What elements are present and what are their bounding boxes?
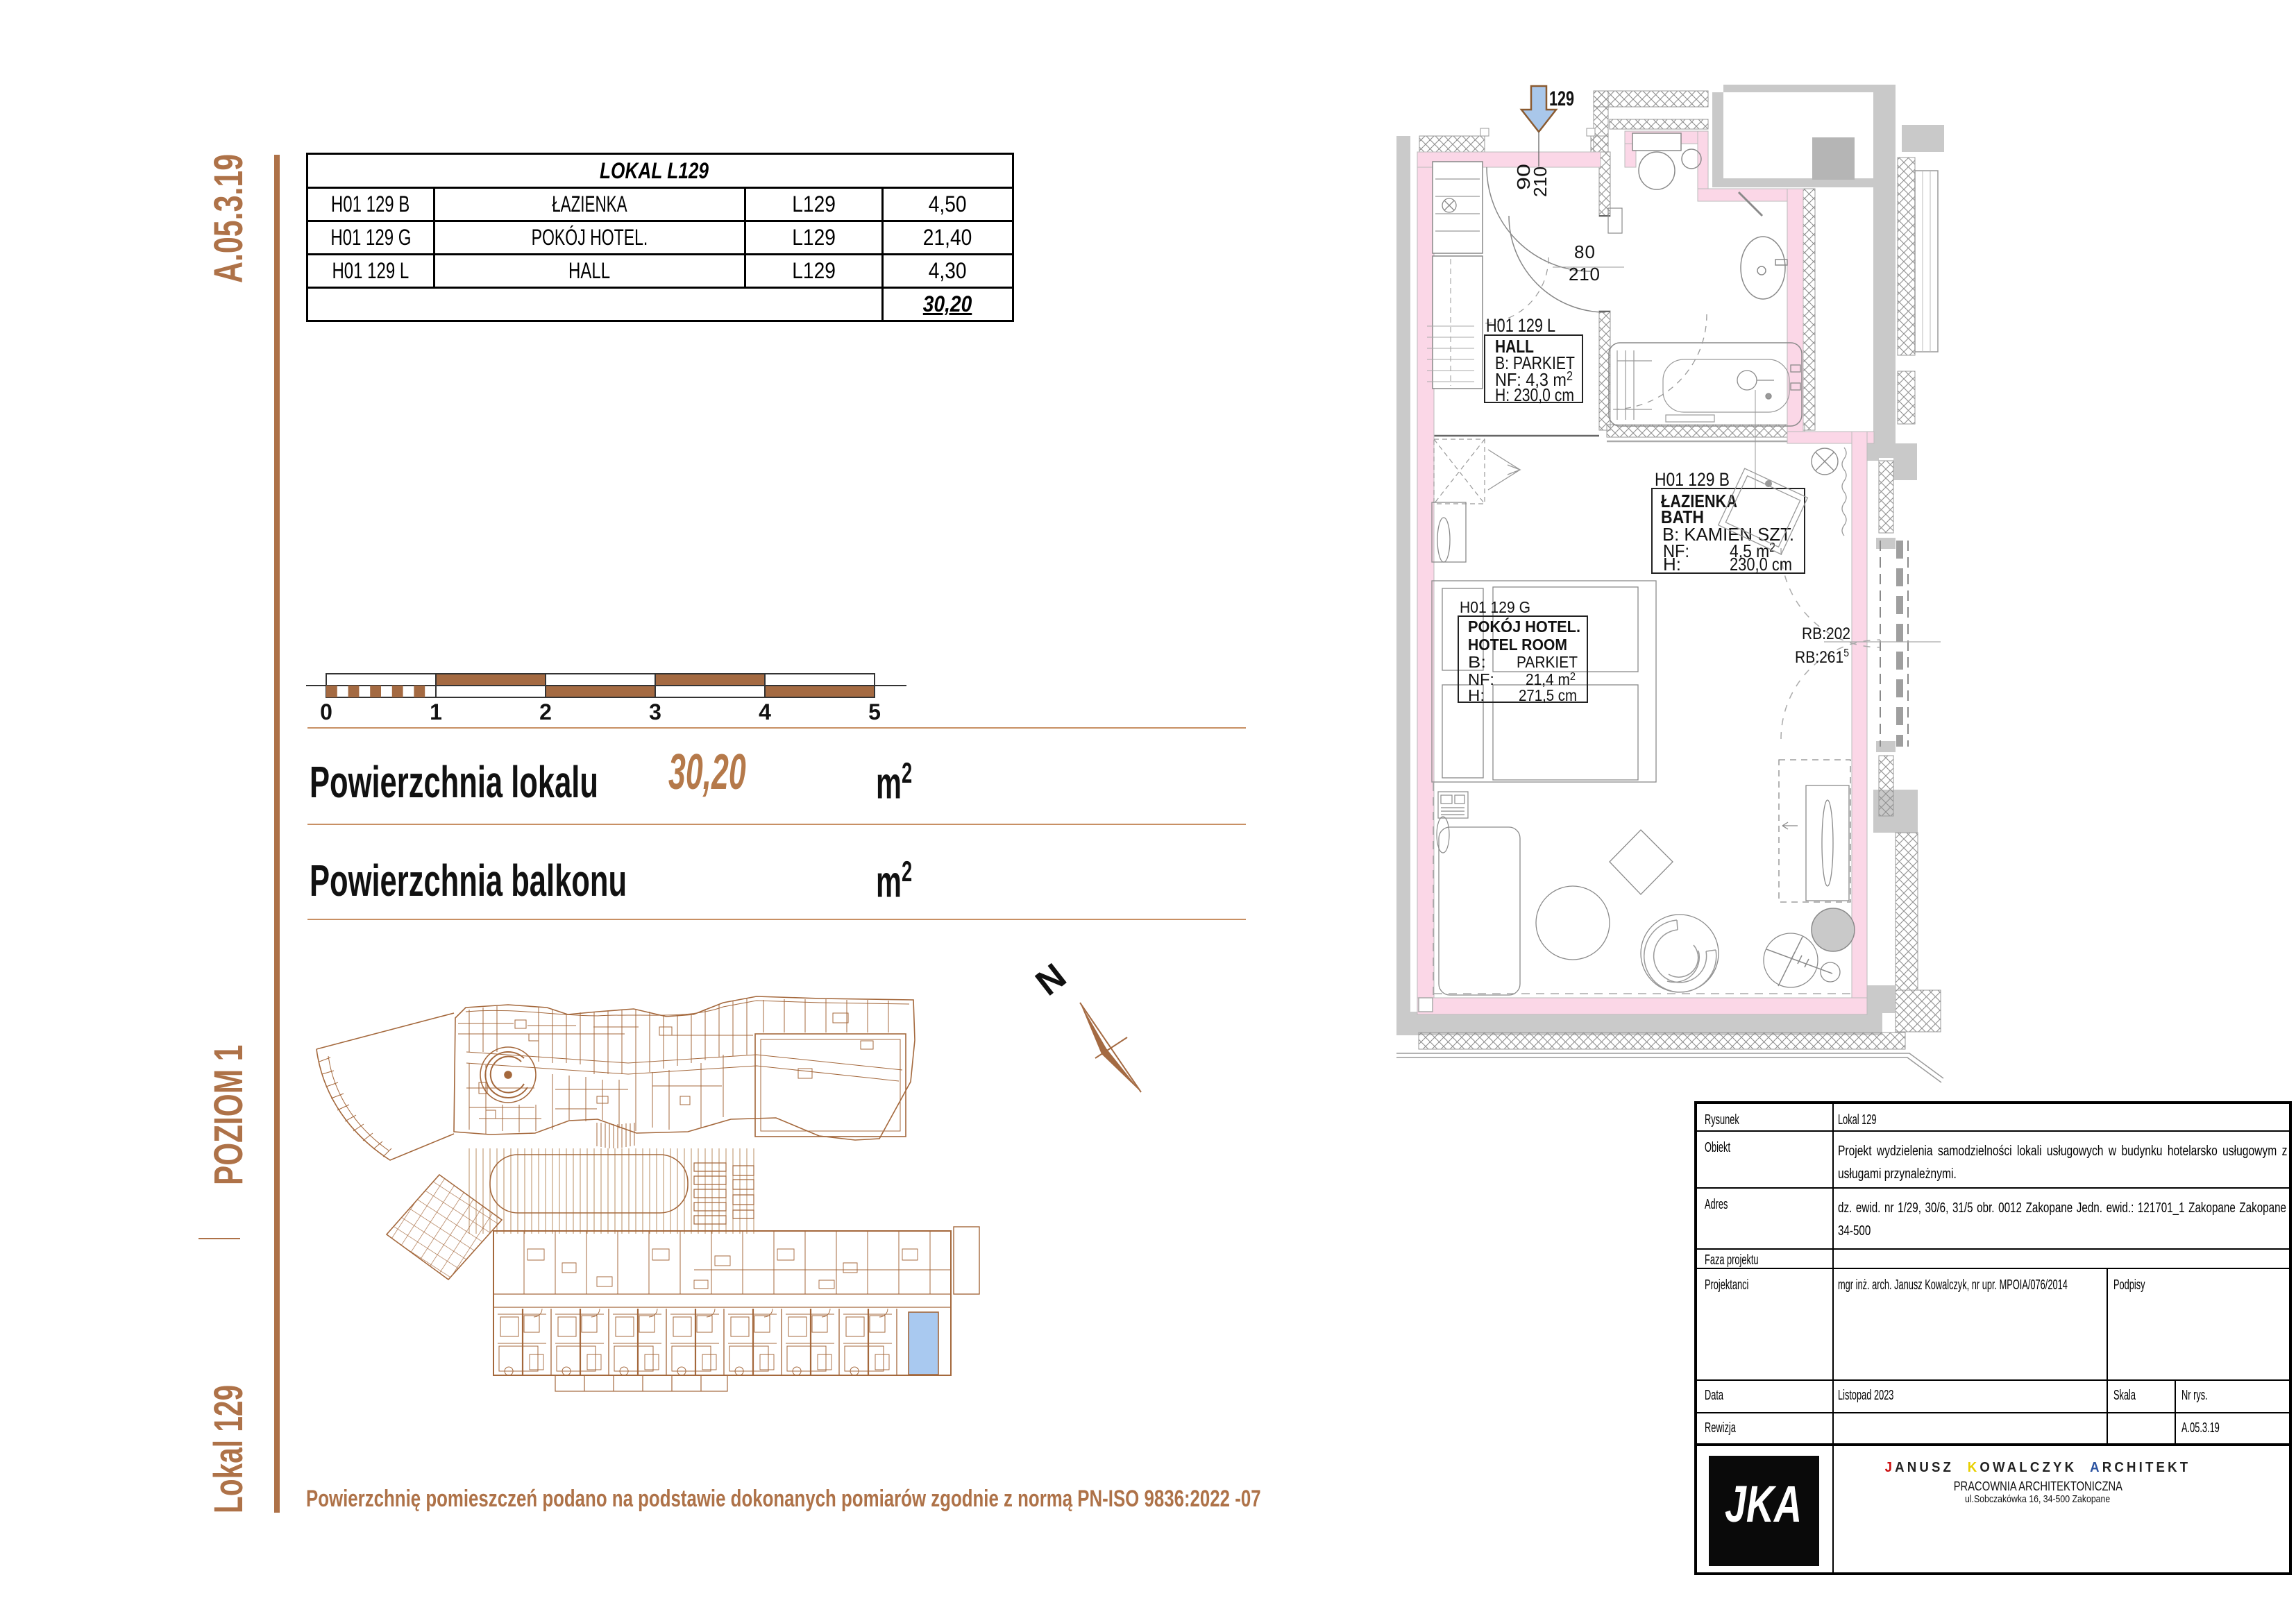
svg-text:PARKIET: PARKIET bbox=[1517, 653, 1578, 671]
svg-text:4: 4 bbox=[759, 699, 771, 724]
svg-text:H:: H: bbox=[1663, 554, 1681, 575]
svg-text:1: 1 bbox=[430, 699, 442, 724]
svg-text:2: 2 bbox=[539, 699, 552, 724]
svg-text:0: 0 bbox=[320, 699, 332, 724]
svg-text:B:: B: bbox=[1468, 653, 1486, 671]
svg-text:210: 210 bbox=[1530, 167, 1551, 197]
svg-text:H:: H: bbox=[1468, 686, 1485, 704]
svg-text:H: 230,0 cm: H: 230,0 cm bbox=[1495, 384, 1574, 405]
svg-text:HOTEL ROOM: HOTEL ROOM bbox=[1468, 636, 1567, 654]
svg-text:H01 129 B: H01 129 B bbox=[1655, 469, 1730, 490]
svg-text:80: 80 bbox=[1574, 241, 1595, 262]
svg-text:129: 129 bbox=[1549, 87, 1574, 110]
svg-text:H01 129 L: H01 129 L bbox=[1486, 315, 1555, 336]
svg-text:210: 210 bbox=[1569, 264, 1600, 284]
svg-text:H01 129 G: H01 129 G bbox=[1460, 598, 1530, 616]
svg-text:230,0 cm: 230,0 cm bbox=[1730, 554, 1792, 575]
svg-text:N: N bbox=[1029, 961, 1074, 1003]
svg-text:5: 5 bbox=[868, 699, 881, 724]
svg-text:POKÓJ HOTEL.: POKÓJ HOTEL. bbox=[1468, 617, 1580, 636]
svg-text:3: 3 bbox=[649, 699, 661, 724]
svg-text:271,5 cm: 271,5 cm bbox=[1519, 686, 1577, 704]
svg-text:RB:202: RB:202 bbox=[1802, 624, 1850, 643]
svg-text:RB:2615: RB:2615 bbox=[1795, 647, 1849, 667]
